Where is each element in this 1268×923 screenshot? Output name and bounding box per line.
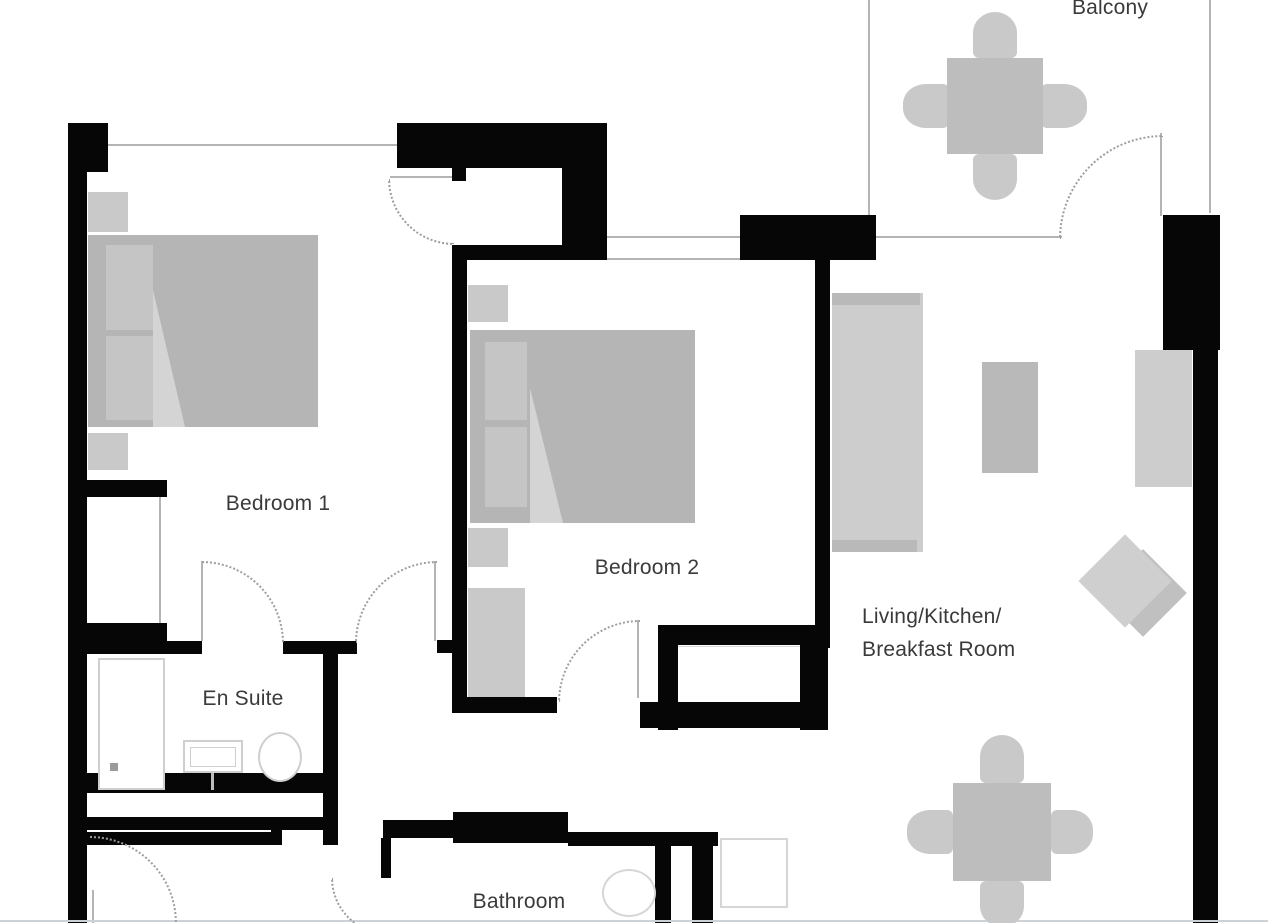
pillow-bedroom1-bottom bbox=[106, 336, 153, 420]
wall-closet-stub-top bbox=[83, 480, 167, 497]
utility-unit bbox=[720, 838, 788, 908]
pillow-bedroom1-top bbox=[106, 245, 153, 330]
ensuite-door-arc bbox=[202, 561, 284, 643]
room-label-living-line2: Breakfast Room bbox=[862, 633, 1015, 666]
wall-bathroom-vert-1 bbox=[655, 846, 671, 923]
dining-table-balcony bbox=[947, 58, 1043, 154]
line-balcony-right bbox=[1209, 0, 1211, 213]
dining-chair-balcony-right bbox=[1041, 84, 1087, 128]
room-label-bedroom-2: Bedroom 2 bbox=[595, 555, 700, 580]
room-label-bathroom: Bathroom bbox=[473, 889, 566, 914]
line-balcony-left bbox=[868, 0, 870, 215]
coffee-table bbox=[982, 362, 1038, 473]
wall-closet-stub-bottom bbox=[83, 623, 167, 641]
wall-bathroom-top-b bbox=[453, 812, 568, 843]
sofa-armrest-bottom bbox=[832, 540, 917, 552]
wall-bedroom2-bottom bbox=[460, 697, 557, 713]
wall-lower-bar-nub bbox=[271, 818, 282, 832]
entry-door-arc bbox=[388, 179, 454, 245]
nightstand-bedroom2-bottom bbox=[468, 528, 508, 567]
bedroom1-door-arc bbox=[355, 561, 437, 643]
wall-entry-inner-bar bbox=[465, 245, 562, 260]
image-bottom-border bbox=[0, 920, 1268, 922]
pillow-bedroom2-bottom bbox=[485, 427, 527, 507]
dining-chair-living-top bbox=[980, 735, 1024, 783]
toilet-ensuite bbox=[258, 732, 302, 782]
dining-chair-balcony-top bbox=[973, 12, 1017, 58]
line-bedroom2-top bbox=[607, 258, 740, 260]
dining-chair-balcony-bottom bbox=[973, 154, 1017, 200]
bathroom-door-arc bbox=[331, 878, 388, 923]
room-label-en-suite: En Suite bbox=[203, 686, 284, 711]
pillow-bedroom2-top bbox=[485, 342, 527, 420]
toilet-bathroom bbox=[602, 869, 656, 917]
entry-door-leaf bbox=[390, 176, 452, 178]
washbasin-bowl bbox=[190, 747, 236, 767]
line-living-balcony-boundary bbox=[876, 236, 1062, 238]
nightstand-bedroom1-bottom bbox=[88, 433, 128, 470]
wall-top-left-block bbox=[68, 123, 108, 172]
wall-hall-stub bbox=[437, 640, 467, 653]
dining-chair-living-left bbox=[907, 810, 953, 854]
room-label-balcony: Balcony bbox=[1072, 0, 1148, 20]
line-hall-top bbox=[607, 236, 740, 238]
wall-top-right-block bbox=[1163, 215, 1220, 350]
wall-bedroom2-right bbox=[815, 258, 830, 648]
dining-table-living bbox=[953, 783, 1051, 881]
dining-chair-living-bottom bbox=[980, 881, 1024, 923]
sofa-armrest-top bbox=[832, 293, 920, 305]
wall-ensuite-right bbox=[323, 641, 338, 845]
closet-front-line bbox=[159, 497, 161, 623]
cupboard-inner-line bbox=[678, 646, 800, 647]
room-label-living-line1: Living/Kitchen/ bbox=[862, 600, 1015, 633]
wall-bathroom-vert-2 bbox=[692, 832, 713, 923]
balcony-door-arc bbox=[1059, 135, 1163, 239]
wall-bathroom-top-a bbox=[383, 820, 460, 838]
wall-entry-right-column bbox=[562, 123, 607, 260]
wall-left-exterior bbox=[68, 123, 87, 923]
room-label-bedroom-1: Bedroom 1 bbox=[226, 491, 331, 516]
shower-enclosure bbox=[98, 658, 165, 790]
wall-bathroom-left-stub bbox=[381, 838, 391, 878]
wardrobe-bedroom2 bbox=[468, 588, 525, 697]
washbasin-tap bbox=[211, 773, 214, 790]
wall-lower-bar-1 bbox=[85, 817, 330, 830]
tv-sideboard bbox=[1135, 350, 1192, 487]
shower-drain bbox=[110, 763, 118, 771]
dining-chair-living-right bbox=[1051, 810, 1093, 854]
wall-entry-hinge-nub bbox=[452, 168, 466, 181]
nightstand-bedroom1-top bbox=[88, 192, 128, 232]
nightstand-bedroom2-top bbox=[468, 285, 508, 322]
window-bedroom1-top bbox=[108, 144, 397, 146]
bedroom2-door-arc bbox=[558, 620, 640, 702]
wall-cupboard-right bbox=[800, 625, 828, 730]
wall-bedroom2-top-block bbox=[740, 215, 876, 260]
dining-chair-balcony-left bbox=[903, 84, 949, 128]
wall-right-exterior bbox=[1193, 350, 1218, 923]
wall-ensuite-top-1 bbox=[83, 641, 202, 654]
sofa bbox=[832, 293, 923, 552]
floor-plan: Bedroom 1 Bedroom 2 En Suite Bathroom Li… bbox=[0, 0, 1268, 923]
hall-door-arc bbox=[90, 836, 177, 923]
wall-ensuite-top-2 bbox=[283, 641, 357, 654]
room-label-living: Living/Kitchen/ Breakfast Room bbox=[862, 600, 1015, 666]
